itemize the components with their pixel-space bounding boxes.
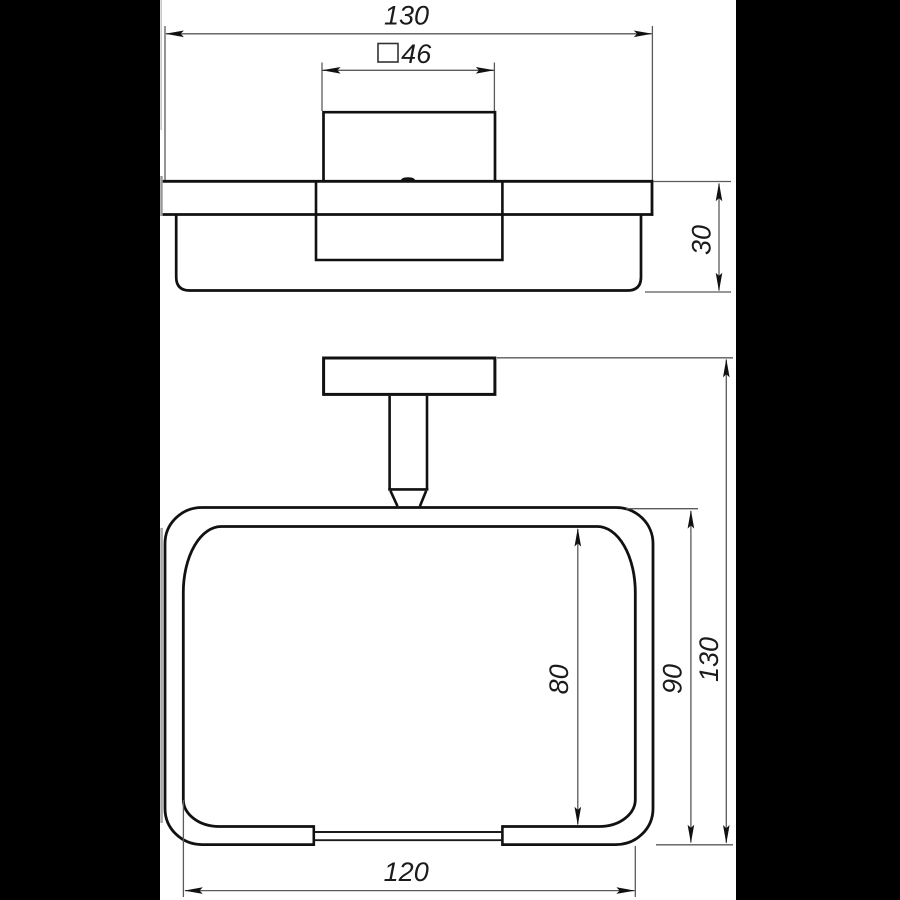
- svg-text:46: 46: [401, 39, 432, 69]
- svg-text:130: 130: [384, 0, 429, 30]
- svg-text:30: 30: [686, 225, 716, 255]
- svg-text:80: 80: [544, 664, 574, 694]
- svg-text:120: 120: [384, 857, 429, 887]
- svg-text:130: 130: [694, 637, 724, 682]
- svg-text:90: 90: [657, 664, 687, 694]
